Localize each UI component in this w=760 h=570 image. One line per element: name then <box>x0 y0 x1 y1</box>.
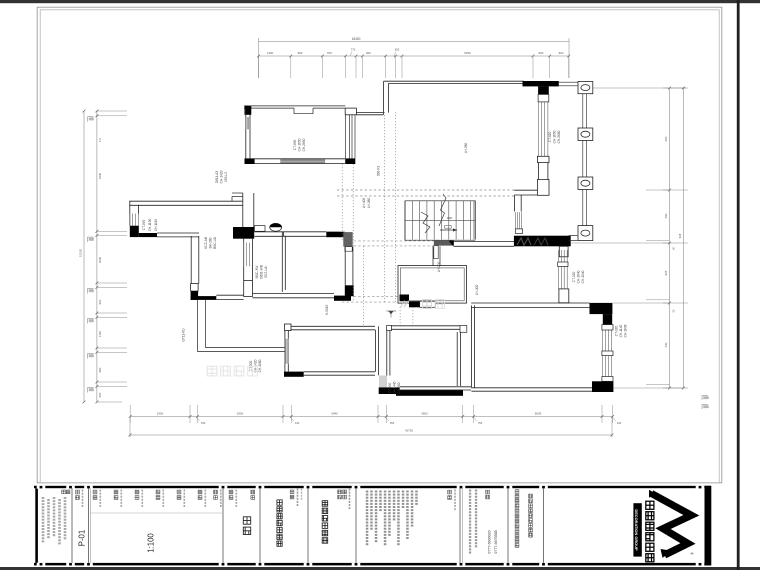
svg-text:1.0: 1.0 <box>98 138 102 142</box>
svg-text:BH-280: BH-280 <box>209 237 213 248</box>
svg-text:960: 960 <box>298 51 303 55</box>
svg-text:910: 910 <box>559 51 564 55</box>
svg-text:BSC-XW: BSC-XW <box>255 266 259 279</box>
svg-text:CT-900: CT-900 <box>388 383 392 394</box>
svg-text:1400: 1400 <box>267 51 274 55</box>
svg-text:CH-2660: CH-2660 <box>557 130 561 143</box>
svg-text:CH-2850: CH-2850 <box>302 138 306 151</box>
svg-text:CH-1640: CH-1640 <box>577 270 581 283</box>
svg-text:H-5240: H-5240 <box>325 305 329 316</box>
svg-text:968: 968 <box>678 233 682 238</box>
svg-text:3563: 3563 <box>421 411 428 415</box>
svg-text:CT-950: CT-950 <box>293 140 297 151</box>
svg-text:LH-200: LH-200 <box>437 262 441 273</box>
svg-text:500: 500 <box>395 48 400 52</box>
svg-text:DECORATION GROUP: DECORATION GROUP <box>634 509 639 551</box>
svg-text:0777-6676588: 0777-6676588 <box>494 530 498 553</box>
svg-text:LH-400: LH-400 <box>362 198 366 209</box>
svg-text:2040: 2040 <box>98 256 102 263</box>
svg-text:LH-360: LH-360 <box>464 143 468 154</box>
svg-text:240: 240 <box>664 342 668 347</box>
svg-text:CH-1060: CH-1060 <box>258 359 262 372</box>
svg-text:D601-WB: D601-WB <box>260 265 264 279</box>
svg-text:160: 160 <box>617 421 622 425</box>
svg-text:970: 970 <box>327 51 332 55</box>
svg-text:2340: 2340 <box>98 172 102 179</box>
svg-text:CT-955: CT-955 <box>142 220 146 231</box>
svg-text:5430: 5430 <box>464 51 471 55</box>
svg-text:®: ® <box>690 552 694 555</box>
svg-text:750: 750 <box>478 421 483 425</box>
svg-text:CT-920: CT-920 <box>615 326 619 337</box>
svg-text:790: 790 <box>201 421 206 425</box>
svg-text:LH-400: LH-400 <box>475 285 479 296</box>
svg-text:LH-360: LH-360 <box>367 198 371 209</box>
svg-text:990: 990 <box>98 367 102 372</box>
svg-text:KCZ-AB: KCZ-AB <box>204 237 208 249</box>
svg-text:900: 900 <box>539 51 544 55</box>
svg-text:1:100: 1:100 <box>147 533 156 553</box>
svg-text:400: 400 <box>366 51 371 55</box>
svg-text:925: 925 <box>664 270 668 275</box>
svg-text:450: 450 <box>98 392 102 397</box>
svg-text:1150: 1150 <box>98 331 102 337</box>
svg-text:955-L3: 955-L3 <box>224 172 228 182</box>
svg-text:41730: 41730 <box>405 429 413 433</box>
svg-text:CT-920: CT-920 <box>548 132 552 143</box>
svg-text:CH-1636: CH-1636 <box>624 324 628 337</box>
svg-text:CH-1440: CH-1440 <box>393 381 397 394</box>
svg-text:140: 140 <box>295 421 300 425</box>
svg-text:350: 350 <box>390 421 395 425</box>
svg-text:5CZ-UA: 5CZ-UA <box>264 265 268 277</box>
svg-text:CH-300: CH-300 <box>397 382 401 393</box>
svg-text:2500: 2500 <box>237 411 244 415</box>
svg-text:600: 600 <box>664 136 668 141</box>
svg-text:770: 770 <box>351 48 356 52</box>
svg-text:960: 960 <box>98 299 102 304</box>
svg-text:390: 390 <box>664 213 668 218</box>
svg-text:5639: 5639 <box>535 411 542 415</box>
svg-text:P-01: P-01 <box>78 530 87 546</box>
svg-text:CH-1420: CH-1420 <box>220 170 224 183</box>
svg-text:CH-1040: CH-1040 <box>581 270 585 283</box>
svg-text:1400: 1400 <box>157 411 164 415</box>
svg-text:0777-6600020: 0777-6600020 <box>488 530 492 553</box>
svg-text:CT-920: CT-920 <box>572 272 576 283</box>
svg-text:CH-1130: CH-1130 <box>148 219 152 232</box>
svg-text:CH-1650: CH-1650 <box>298 138 302 151</box>
svg-text:5940: 5940 <box>331 411 338 415</box>
svg-text:15120: 15120 <box>79 249 83 257</box>
svg-text:CH-1119: CH-1119 <box>154 219 158 232</box>
svg-text:CH-1140: CH-1140 <box>619 325 623 338</box>
svg-text:GT11-KD: GT11-KD <box>182 328 186 342</box>
svg-text:D611-A3: D611-A3 <box>215 171 219 184</box>
svg-text:BSC-UA: BSC-UA <box>213 236 217 249</box>
svg-text:18450: 18450 <box>352 37 361 41</box>
svg-text:CH-1650: CH-1650 <box>553 130 557 143</box>
svg-text:096-K3: 096-K3 <box>377 166 381 177</box>
